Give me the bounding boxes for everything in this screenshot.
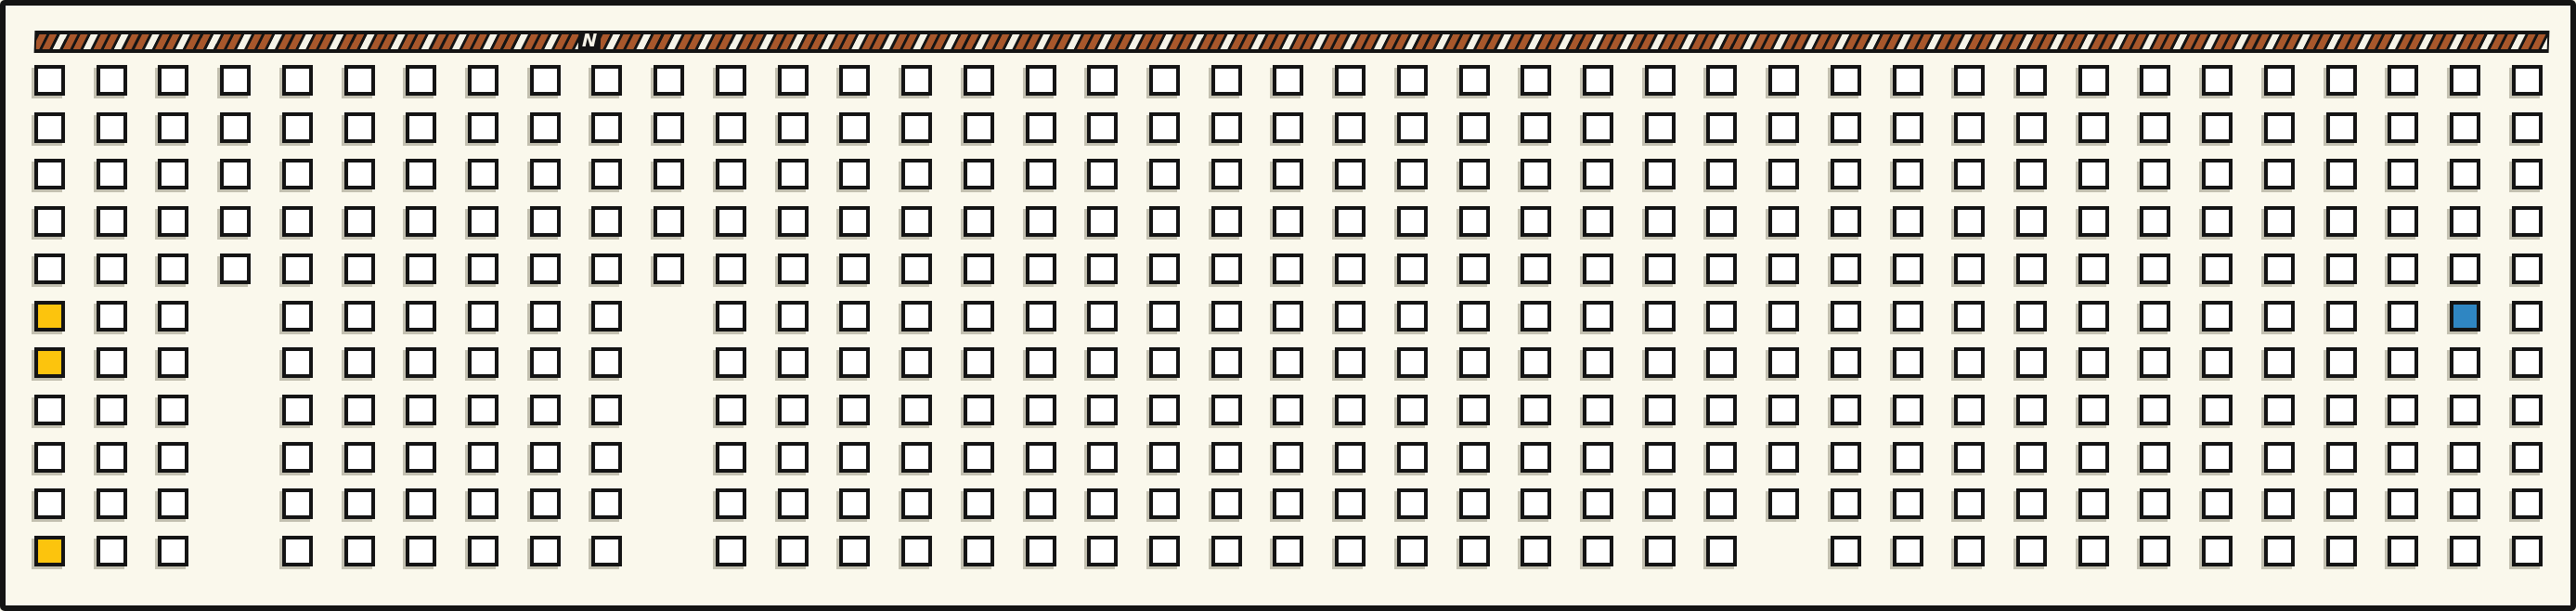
- grid-cell[interactable]: [716, 206, 746, 237]
- grid-cell[interactable]: [778, 347, 809, 378]
- grid-cell[interactable]: [1087, 301, 1118, 331]
- grid-cell[interactable]: [1211, 395, 1242, 425]
- grid-cell[interactable]: [2140, 206, 2170, 237]
- grid-cell[interactable]: [1335, 301, 1366, 331]
- grid-cell[interactable]: [2078, 536, 2109, 566]
- grid-cell[interactable]: [901, 347, 932, 378]
- grid-cell[interactable]: [2078, 206, 2109, 237]
- grid-cell[interactable]: [1459, 395, 1490, 425]
- grid-cell[interactable]: [97, 159, 127, 189]
- grid-cell[interactable]: [716, 112, 746, 143]
- grid-cell[interactable]: [2202, 488, 2233, 519]
- grid-cell[interactable]: [2388, 159, 2418, 189]
- grid-cell[interactable]: [468, 112, 498, 143]
- grid-cell[interactable]: [406, 159, 436, 189]
- grid-cell[interactable]: [1397, 159, 1428, 189]
- grid-cell[interactable]: [1706, 536, 1737, 566]
- grid-cell[interactable]: [468, 301, 498, 331]
- grid-cell[interactable]: [1273, 347, 1303, 378]
- grid-cell[interactable]: [406, 442, 436, 473]
- grid-cell[interactable]: [1831, 253, 1861, 284]
- grid-cell[interactable]: [1831, 301, 1861, 331]
- grid-cell[interactable]: [530, 347, 561, 378]
- grid-cell[interactable]: [2264, 347, 2295, 378]
- grid-cell[interactable]: [1954, 65, 1985, 96]
- grid-cell[interactable]: [1831, 442, 1861, 473]
- grid-cell[interactable]: [1149, 488, 1180, 519]
- grid-cell[interactable]: [716, 301, 746, 331]
- grid-cell[interactable]: [1768, 112, 1799, 143]
- grid-cell[interactable]: [1149, 206, 1180, 237]
- grid-cell[interactable]: [2326, 206, 2357, 237]
- grid-cell[interactable]: [1211, 536, 1242, 566]
- grid-cell[interactable]: [2264, 301, 2295, 331]
- grid-cell[interactable]: [2326, 395, 2357, 425]
- grid-cell[interactable]: [97, 301, 127, 331]
- grid-cell[interactable]: [530, 395, 561, 425]
- grid-cell[interactable]: [2264, 395, 2295, 425]
- grid-cell[interactable]: [2450, 347, 2480, 378]
- grid-cell[interactable]: [778, 301, 809, 331]
- grid-cell[interactable]: [282, 159, 313, 189]
- grid-cell[interactable]: [591, 159, 622, 189]
- grid-cell[interactable]: [1954, 159, 1985, 189]
- grid-cell[interactable]: [1893, 395, 1923, 425]
- grid-cell[interactable]: [1273, 65, 1303, 96]
- grid-cell[interactable]: [1397, 442, 1428, 473]
- grid-cell[interactable]: [1954, 112, 1985, 143]
- grid-cell[interactable]: [2264, 488, 2295, 519]
- grid-cell[interactable]: [34, 488, 65, 519]
- grid-cell[interactable]: [964, 206, 994, 237]
- grid-cell[interactable]: [1087, 488, 1118, 519]
- grid-cell[interactable]: [2326, 112, 2357, 143]
- grid-cell[interactable]: [2202, 65, 2233, 96]
- grid-cell[interactable]: [2450, 65, 2480, 96]
- grid-cell[interactable]: [1893, 488, 1923, 519]
- grid-cell[interactable]: [1397, 301, 1428, 331]
- grid-cell[interactable]: [530, 253, 561, 284]
- grid-cell[interactable]: [282, 536, 313, 566]
- grid-cell[interactable]: [1583, 488, 1613, 519]
- grid-cell[interactable]: [34, 206, 65, 237]
- grid-cell[interactable]: [901, 65, 932, 96]
- grid-cell[interactable]: [1211, 65, 1242, 96]
- grid-cell[interactable]: [282, 488, 313, 519]
- grid-cell[interactable]: [1768, 301, 1799, 331]
- grid-cell[interactable]: [468, 347, 498, 378]
- grid-cell[interactable]: [468, 395, 498, 425]
- grid-cell[interactable]: [2388, 536, 2418, 566]
- grid-cell[interactable]: [901, 395, 932, 425]
- grid-cell[interactable]: [1583, 112, 1613, 143]
- grid-cell[interactable]: [34, 112, 65, 143]
- grid-cell[interactable]: [1273, 112, 1303, 143]
- grid-cell[interactable]: [1954, 301, 1985, 331]
- grid-cell[interactable]: [2016, 536, 2047, 566]
- grid-cell[interactable]: [1087, 65, 1118, 96]
- grid-cell[interactable]: [839, 395, 870, 425]
- grid-cell[interactable]: [406, 112, 436, 143]
- grid-cell[interactable]: [1459, 301, 1490, 331]
- grid-cell[interactable]: [839, 206, 870, 237]
- grid-cell[interactable]: [591, 206, 622, 237]
- grid-cell[interactable]: [344, 442, 375, 473]
- grid-cell[interactable]: [839, 488, 870, 519]
- grid-cell[interactable]: [344, 395, 375, 425]
- grid-cell[interactable]: [1397, 206, 1428, 237]
- grid-cell[interactable]: [282, 112, 313, 143]
- grid-cell[interactable]: [1831, 112, 1861, 143]
- grid-cell[interactable]: [654, 206, 684, 237]
- grid-cell[interactable]: [2450, 488, 2480, 519]
- grid-cell[interactable]: [1893, 253, 1923, 284]
- grid-cell[interactable]: [158, 253, 188, 284]
- grid-cell[interactable]: [1521, 159, 1551, 189]
- grid-cell[interactable]: [530, 536, 561, 566]
- grid-cell[interactable]: [901, 301, 932, 331]
- grid-cell[interactable]: [1459, 159, 1490, 189]
- grid-cell[interactable]: [839, 301, 870, 331]
- grid-cell[interactable]: [2140, 536, 2170, 566]
- grid-cell[interactable]: [2016, 253, 2047, 284]
- grid-cell[interactable]: [468, 65, 498, 96]
- grid-cell[interactable]: [2388, 112, 2418, 143]
- grid-cell[interactable]: [1335, 347, 1366, 378]
- grid-cell[interactable]: [839, 347, 870, 378]
- grid-cell[interactable]: [716, 395, 746, 425]
- grid-cell[interactable]: [1583, 301, 1613, 331]
- grid-cell[interactable]: [530, 206, 561, 237]
- grid-cell[interactable]: [1893, 65, 1923, 96]
- grid-cell[interactable]: [2326, 65, 2357, 96]
- grid-cell[interactable]: [406, 301, 436, 331]
- grid-cell[interactable]: [2078, 112, 2109, 143]
- grid-cell[interactable]: [716, 442, 746, 473]
- grid-cell[interactable]: [901, 206, 932, 237]
- grid-cell[interactable]: [1954, 488, 1985, 519]
- grid-cell[interactable]: [2512, 488, 2543, 519]
- grid-cell[interactable]: [530, 488, 561, 519]
- grid-cell[interactable]: [1026, 301, 1056, 331]
- grid-cell[interactable]: [158, 488, 188, 519]
- grid-cell[interactable]: [839, 442, 870, 473]
- grid-cell[interactable]: [97, 488, 127, 519]
- grid-cell[interactable]: [2140, 159, 2170, 189]
- grid-cell[interactable]: [2202, 442, 2233, 473]
- grid-cell[interactable]: [1521, 395, 1551, 425]
- grid-cell[interactable]: [1768, 159, 1799, 189]
- grid-cell[interactable]: [1459, 206, 1490, 237]
- grid-cell[interactable]: [1026, 488, 1056, 519]
- grid-cell[interactable]: [1273, 442, 1303, 473]
- grid-cell[interactable]: [778, 112, 809, 143]
- grid-cell[interactable]: [1893, 347, 1923, 378]
- grid-cell[interactable]: [468, 488, 498, 519]
- grid-cell[interactable]: [1211, 206, 1242, 237]
- grid-cell[interactable]: [901, 253, 932, 284]
- grid-cell[interactable]: [1335, 253, 1366, 284]
- grid-cell[interactable]: [1831, 395, 1861, 425]
- grid-cell[interactable]: [2388, 253, 2418, 284]
- grid-cell[interactable]: [964, 253, 994, 284]
- grid-cell[interactable]: [1645, 488, 1676, 519]
- grid-cell[interactable]: [778, 536, 809, 566]
- grid-cell[interactable]: [964, 347, 994, 378]
- grid-cell[interactable]: [1645, 112, 1676, 143]
- grid-cell[interactable]: [2202, 395, 2233, 425]
- grid-cell[interactable]: [530, 112, 561, 143]
- grid-cell[interactable]: [468, 253, 498, 284]
- grid-cell[interactable]: [1521, 65, 1551, 96]
- grid-cell[interactable]: [1397, 65, 1428, 96]
- grid-cell[interactable]: [716, 347, 746, 378]
- grid-cell[interactable]: [1149, 536, 1180, 566]
- grid-cell[interactable]: [2078, 488, 2109, 519]
- grid-cell[interactable]: [716, 159, 746, 189]
- grid-cell[interactable]: [1087, 159, 1118, 189]
- grid-cell[interactable]: [2450, 159, 2480, 189]
- grid-cell[interactable]: [1706, 65, 1737, 96]
- grid-cell[interactable]: [964, 112, 994, 143]
- grid-cell[interactable]: [1397, 347, 1428, 378]
- grid-cell[interactable]: [2264, 536, 2295, 566]
- grid-cell[interactable]: [406, 65, 436, 96]
- grid-cell[interactable]: [1954, 253, 1985, 284]
- grid-cell[interactable]: [1583, 65, 1613, 96]
- grid-cell[interactable]: [1645, 347, 1676, 378]
- grid-cell[interactable]: [716, 253, 746, 284]
- grid-cell[interactable]: [1026, 159, 1056, 189]
- grid-cell[interactable]: [1335, 159, 1366, 189]
- grid-cell[interactable]: [2202, 347, 2233, 378]
- grid-cell[interactable]: [1893, 159, 1923, 189]
- grid-cell[interactable]: [97, 206, 127, 237]
- grid-cell[interactable]: [1026, 65, 1056, 96]
- grid-cell[interactable]: [591, 488, 622, 519]
- grid-cell[interactable]: [1831, 159, 1861, 189]
- grid-cell[interactable]: [1335, 112, 1366, 143]
- grid-cell[interactable]: [344, 65, 375, 96]
- grid-cell[interactable]: [1211, 159, 1242, 189]
- grid-cell[interactable]: [344, 159, 375, 189]
- grid-cell[interactable]: [282, 206, 313, 237]
- grid-cell[interactable]: [1706, 442, 1737, 473]
- grid-cell[interactable]: [591, 65, 622, 96]
- grid-cell[interactable]: [158, 159, 188, 189]
- grid-cell[interactable]: [591, 253, 622, 284]
- grid-cell[interactable]: [1645, 206, 1676, 237]
- grid-cell[interactable]: [344, 206, 375, 237]
- grid-cell[interactable]: [282, 301, 313, 331]
- grid-cell[interactable]: [901, 442, 932, 473]
- grid-cell[interactable]: [1706, 301, 1737, 331]
- grid-cell[interactable]: [2512, 206, 2543, 237]
- grid-cell[interactable]: [2078, 65, 2109, 96]
- grid-cell[interactable]: [2512, 65, 2543, 96]
- grid-cell[interactable]: [34, 253, 65, 284]
- grid-cell[interactable]: [158, 206, 188, 237]
- grid-cell[interactable]: [97, 347, 127, 378]
- grid-cell[interactable]: [901, 488, 932, 519]
- grid-cell[interactable]: [1831, 536, 1861, 566]
- grid-cell[interactable]: [2016, 112, 2047, 143]
- grid-cell[interactable]: [1645, 442, 1676, 473]
- grid-cell[interactable]: [1273, 206, 1303, 237]
- grid-cell[interactable]: [1459, 442, 1490, 473]
- grid-cell[interactable]: [964, 159, 994, 189]
- grid-cell[interactable]: [344, 536, 375, 566]
- grid-cell[interactable]: [158, 536, 188, 566]
- grid-cell[interactable]: [2078, 395, 2109, 425]
- grid-cell[interactable]: [1273, 536, 1303, 566]
- grid-cell[interactable]: [1397, 112, 1428, 143]
- grid-cell[interactable]: [1645, 536, 1676, 566]
- grid-cell[interactable]: [1768, 206, 1799, 237]
- grid-cell[interactable]: [2326, 301, 2357, 331]
- grid-cell[interactable]: [344, 488, 375, 519]
- grid-cell[interactable]: [1211, 347, 1242, 378]
- grid-cell[interactable]: [1583, 395, 1613, 425]
- grid-cell[interactable]: [1954, 347, 1985, 378]
- grid-cell[interactable]: [1768, 65, 1799, 96]
- grid-cell[interactable]: [2202, 253, 2233, 284]
- grid-cell[interactable]: [1459, 488, 1490, 519]
- grid-cell[interactable]: [1768, 488, 1799, 519]
- grid-cell[interactable]: [1149, 301, 1180, 331]
- grid-cell[interactable]: [406, 488, 436, 519]
- grid-cell[interactable]: [1893, 301, 1923, 331]
- grid-cell[interactable]: [2264, 442, 2295, 473]
- grid-cell[interactable]: [1397, 395, 1428, 425]
- grid-cell[interactable]: [406, 536, 436, 566]
- grid-cell[interactable]: [2450, 442, 2480, 473]
- grid-cell[interactable]: [2264, 206, 2295, 237]
- grid-cell[interactable]: [282, 347, 313, 378]
- grid-cell[interactable]: [282, 442, 313, 473]
- grid-cell[interactable]: [1459, 112, 1490, 143]
- grid-cell[interactable]: [282, 253, 313, 284]
- grid-cell[interactable]: [964, 488, 994, 519]
- grid-cell[interactable]: [1397, 536, 1428, 566]
- grid-cell[interactable]: [2016, 442, 2047, 473]
- grid-cell[interactable]: [2016, 206, 2047, 237]
- grid-cell[interactable]: [282, 65, 313, 96]
- grid-cell[interactable]: [964, 65, 994, 96]
- grid-cell[interactable]: [778, 65, 809, 96]
- grid-cell[interactable]: [1893, 206, 1923, 237]
- grid-cell[interactable]: [2140, 442, 2170, 473]
- grid-cell[interactable]: [2450, 395, 2480, 425]
- grid-cell[interactable]: [2512, 347, 2543, 378]
- grid-cell[interactable]: [839, 112, 870, 143]
- grid-cell[interactable]: [901, 536, 932, 566]
- grid-cell[interactable]: [1026, 395, 1056, 425]
- grid-cell[interactable]: [1893, 442, 1923, 473]
- grid-cell[interactable]: [1273, 301, 1303, 331]
- grid-cell[interactable]: [1087, 253, 1118, 284]
- grid-cell[interactable]: [964, 301, 994, 331]
- grid-cell[interactable]: [1706, 253, 1737, 284]
- grid-cell[interactable]: [1459, 536, 1490, 566]
- grid-cell[interactable]: [1583, 159, 1613, 189]
- grid-cell[interactable]: [1149, 253, 1180, 284]
- grid-cell[interactable]: [2202, 112, 2233, 143]
- grid-cell[interactable]: [778, 159, 809, 189]
- grid-cell[interactable]: [1211, 112, 1242, 143]
- grid-cell[interactable]: [2202, 536, 2233, 566]
- grid-cell[interactable]: [1335, 442, 1366, 473]
- grid-cell[interactable]: [344, 301, 375, 331]
- grid-cell-yellow[interactable]: [34, 301, 65, 331]
- grid-cell[interactable]: [1521, 347, 1551, 378]
- grid-cell[interactable]: [716, 488, 746, 519]
- grid-cell[interactable]: [1645, 395, 1676, 425]
- grid-cell[interactable]: [2078, 301, 2109, 331]
- grid-cell[interactable]: [2078, 253, 2109, 284]
- grid-cell[interactable]: [1397, 488, 1428, 519]
- grid-cell[interactable]: [716, 536, 746, 566]
- grid-cell[interactable]: [2326, 347, 2357, 378]
- grid-cell[interactable]: [2016, 301, 2047, 331]
- grid-cell[interactable]: [220, 112, 251, 143]
- grid-cell[interactable]: [406, 206, 436, 237]
- grid-cell[interactable]: [2264, 112, 2295, 143]
- grid-cell[interactable]: [2388, 347, 2418, 378]
- grid-cell[interactable]: [1087, 347, 1118, 378]
- grid-cell[interactable]: [1459, 347, 1490, 378]
- grid-cell[interactable]: [1831, 347, 1861, 378]
- grid-cell[interactable]: [34, 159, 65, 189]
- grid-cell[interactable]: [1706, 488, 1737, 519]
- grid-cell[interactable]: [2326, 442, 2357, 473]
- grid-cell[interactable]: [1087, 395, 1118, 425]
- grid-cell[interactable]: [1273, 159, 1303, 189]
- grid-cell[interactable]: [1831, 206, 1861, 237]
- grid-cell[interactable]: [2016, 159, 2047, 189]
- grid-cell[interactable]: [2450, 253, 2480, 284]
- grid-cell[interactable]: [716, 65, 746, 96]
- grid-cell[interactable]: [1026, 112, 1056, 143]
- grid-cell[interactable]: [158, 112, 188, 143]
- grid-cell[interactable]: [1831, 488, 1861, 519]
- grid-cell[interactable]: [2512, 442, 2543, 473]
- grid-cell[interactable]: [1026, 536, 1056, 566]
- grid-cell[interactable]: [1335, 536, 1366, 566]
- grid-cell[interactable]: [2388, 301, 2418, 331]
- grid-cell[interactable]: [1583, 442, 1613, 473]
- grid-cell[interactable]: [591, 112, 622, 143]
- grid-cell[interactable]: [1026, 253, 1056, 284]
- grid-cell[interactable]: [468, 206, 498, 237]
- grid-cell[interactable]: [2016, 488, 2047, 519]
- grid-cell[interactable]: [468, 159, 498, 189]
- grid-cell[interactable]: [654, 112, 684, 143]
- grid-cell[interactable]: [1768, 253, 1799, 284]
- grid-cell[interactable]: [654, 159, 684, 189]
- grid-cell[interactable]: [1583, 347, 1613, 378]
- grid-cell[interactable]: [1211, 442, 1242, 473]
- grid-cell[interactable]: [2202, 301, 2233, 331]
- grid-cell[interactable]: [2326, 253, 2357, 284]
- grid-cell[interactable]: [97, 253, 127, 284]
- grid-cell[interactable]: [1211, 488, 1242, 519]
- grid-cell[interactable]: [2512, 253, 2543, 284]
- grid-cell[interactable]: [1211, 301, 1242, 331]
- grid-cell[interactable]: [34, 65, 65, 96]
- grid-cell[interactable]: [2326, 536, 2357, 566]
- grid-cell[interactable]: [1087, 442, 1118, 473]
